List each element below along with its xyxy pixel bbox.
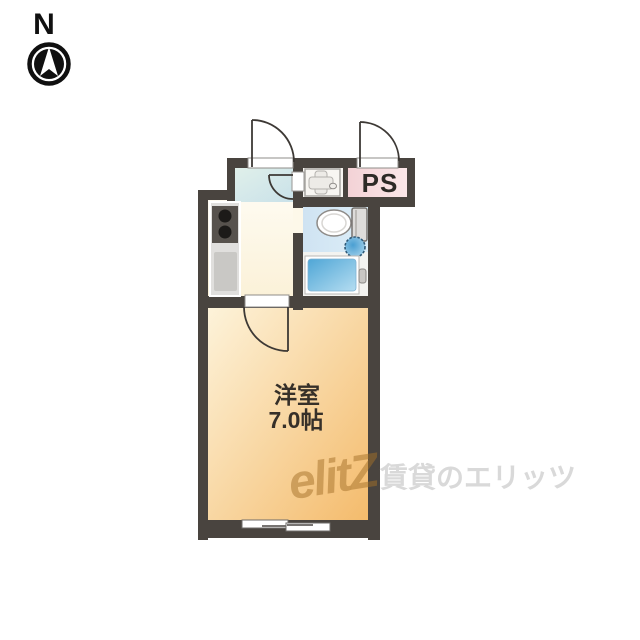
washer-pan-drain — [330, 183, 337, 189]
wall-main-right — [368, 296, 380, 540]
stove-burner — [219, 210, 232, 223]
pipe-space: PS — [362, 168, 399, 198]
pipe-space-label: PS — [362, 168, 399, 198]
washer-pan-area — [305, 169, 340, 196]
floor-plan-image: N — [0, 0, 640, 640]
wall-bathroom-right — [368, 197, 380, 310]
main-room: 洋室 7.0帖 — [269, 382, 324, 433]
bathtub — [308, 259, 356, 291]
main-room-name: 洋室 — [274, 382, 320, 408]
kitchen — [210, 202, 240, 296]
stove-burner — [219, 226, 232, 239]
main-room-door-threshold — [245, 295, 289, 307]
watermark: elitZ 賃貸のエリッツ — [285, 443, 576, 510]
front-door-arc — [252, 120, 294, 162]
washer-pan-cross-center — [316, 178, 327, 189]
watermark-brand-text: 賃貸のエリッツ — [379, 462, 576, 493]
wall-below-ps — [293, 197, 415, 207]
ps-door-threshold — [357, 158, 398, 168]
wash-basin — [345, 237, 365, 257]
floor-plan-canvas: N — [0, 0, 640, 640]
main-room-size: 7.0帖 — [269, 407, 324, 433]
compass: N — [30, 8, 69, 84]
toilet-tank — [352, 208, 367, 241]
wall-nook-ps-divider — [343, 158, 348, 198]
bathtub-handle — [359, 269, 366, 283]
compass-north-label: N — [33, 8, 55, 41]
kitchen-sink — [214, 252, 237, 291]
front-door-threshold — [248, 158, 293, 168]
entrance-side-door-opening — [292, 172, 304, 191]
wall-left — [198, 190, 208, 540]
ps-door-arc — [360, 122, 399, 161]
bathroom-door-opening — [293, 208, 303, 233]
